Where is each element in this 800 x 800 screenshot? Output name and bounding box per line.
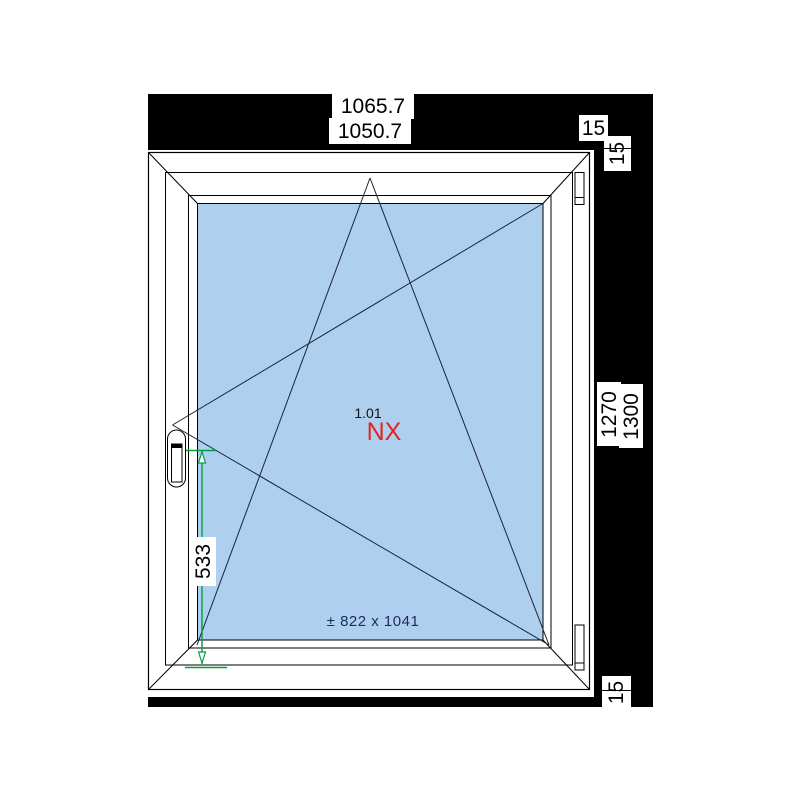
window-drawing-canvas: 1065.7 1050.7 15 15 1270 1300 15 533 1.0… xyxy=(0,0,800,800)
dim-total-height: 1300 xyxy=(619,384,643,448)
dim-frame-height: 1270 xyxy=(597,382,621,446)
window-handle[interactable] xyxy=(168,430,186,487)
dim-total-width: 1065.7 xyxy=(332,93,414,119)
bottom-extension-tick-line xyxy=(594,690,646,691)
hinge-bottom xyxy=(575,625,584,670)
system-code: NX xyxy=(360,418,408,446)
hinge-top xyxy=(575,173,584,205)
glass-size-label: ± 822 x 1041 xyxy=(320,612,426,631)
dim-bottom-extension: 15 xyxy=(602,676,631,708)
dim-frame-width: 1050.7 xyxy=(329,118,411,144)
dim-top-extension: 15 xyxy=(604,136,631,171)
top-extension-tick-line xyxy=(594,148,646,149)
dim-handle-height: 533 xyxy=(191,537,216,586)
